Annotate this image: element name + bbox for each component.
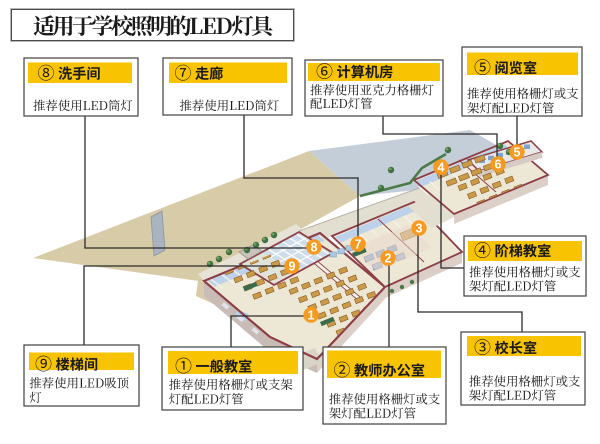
svg-text:8: 8 [311,241,318,255]
svg-text:6: 6 [495,158,502,172]
svg-text:2: 2 [385,252,392,266]
svg-text:5: 5 [514,146,521,160]
svg-text:9: 9 [289,260,296,274]
svg-text:4: 4 [438,161,445,175]
svg-text:7: 7 [355,238,362,252]
svg-text:1: 1 [308,309,315,323]
svg-text:3: 3 [416,222,423,236]
